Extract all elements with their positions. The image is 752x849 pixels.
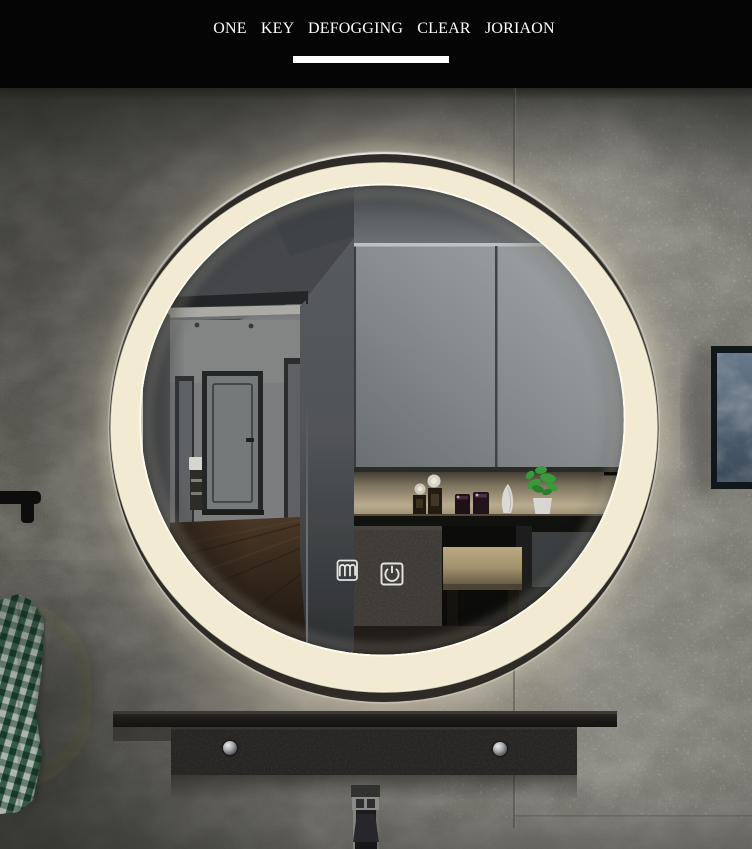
svg-text:ONE KEY DEFOGGING CLEAR JORIAO: ONE KEY DEFOGGING CLEAR JORIAON: [213, 20, 555, 37]
